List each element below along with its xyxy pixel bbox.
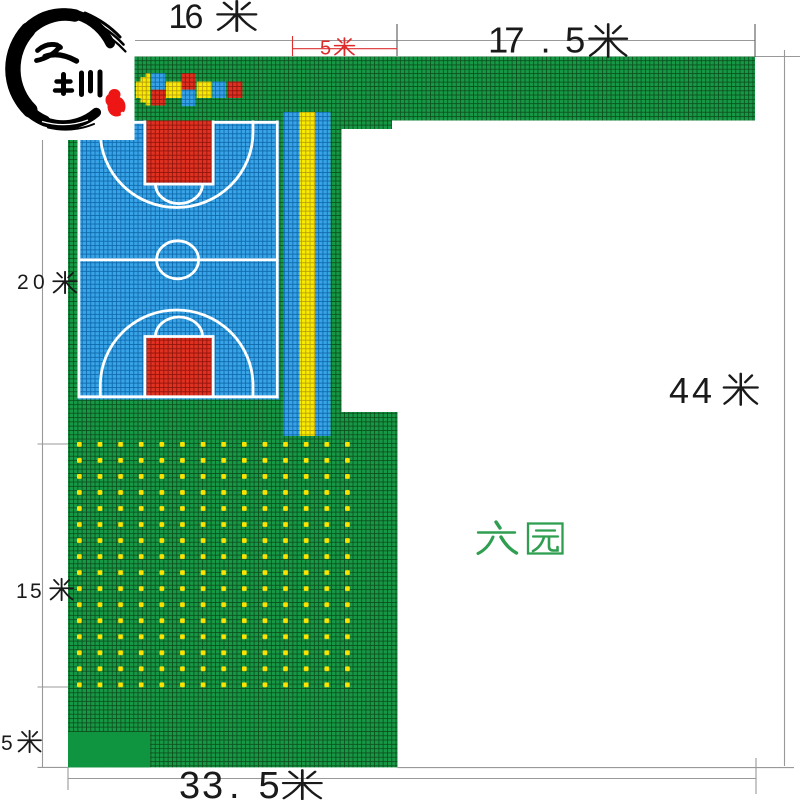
svg-text:44: 44 [669,370,712,411]
svg-text:15: 15 [16,580,42,603]
svg-text:20: 20 [17,271,45,294]
svg-text:5: 5 [320,38,331,60]
svg-text:5: 5 [1,732,13,755]
svg-text:33.5: 33.5 [179,765,280,800]
svg-text:16: 16 [169,0,204,36]
